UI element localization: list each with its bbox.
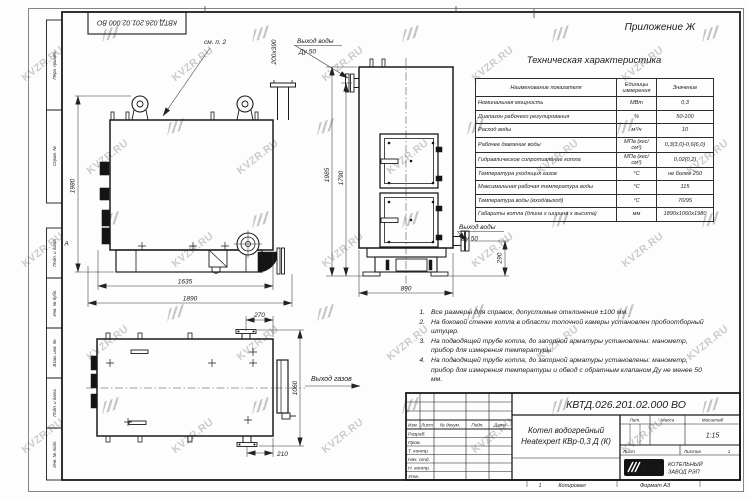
spec-cell: 1890х1060х1980 bbox=[657, 208, 714, 222]
dim-v2-flange-height: 290 bbox=[497, 252, 504, 264]
dim-v3-bottom-offset: 210 bbox=[276, 451, 288, 458]
tb-row-tkontr: Т. контр. bbox=[408, 449, 429, 455]
margin-label: Перв. примен. bbox=[52, 50, 57, 79]
scale-value: 1:15 bbox=[706, 433, 720, 440]
note-text: На боковой стенке котла в области топочн… bbox=[431, 318, 709, 337]
spec-cell: 0,02(0,2) bbox=[657, 152, 714, 167]
tb-row-razrab: Разраб. bbox=[408, 432, 426, 438]
water-outlet2-label: Выход воды bbox=[459, 223, 496, 231]
spec-cell: °С bbox=[617, 181, 657, 195]
spec-row: Температура уходящих газов°Сне более 250 bbox=[476, 167, 714, 181]
spec-cell: мм bbox=[617, 208, 657, 222]
product-title-line2: Heatexpert КВр-0,3 Д (К) bbox=[521, 437, 611, 446]
tb-header-docnum: № докум. bbox=[440, 423, 460, 428]
company-name-line1: КОТЕЛЬНЫЙ bbox=[668, 460, 703, 468]
spec-row: Максимальная рабочая температура воды°С1… bbox=[476, 181, 714, 195]
margin-label: Подп. и дата bbox=[52, 389, 57, 417]
note-item: 3.На подводящей трубе котла, до запорной… bbox=[409, 337, 709, 356]
see-note-label: см. п. 2 bbox=[204, 39, 227, 46]
note-number: 1. bbox=[409, 308, 431, 318]
note-text: На подводящей трубе котла, до запорной а… bbox=[431, 337, 709, 356]
appendix-label: Приложение Ж bbox=[495, 22, 695, 33]
tb-lit-label: Лит. bbox=[629, 418, 641, 423]
dim-v2-width: 890 bbox=[401, 286, 412, 293]
note-item: 2.На боковой стенке котла в области топо… bbox=[409, 318, 709, 337]
footer-num: 1 bbox=[538, 483, 541, 489]
dim-v2-inner-height: 1790 bbox=[338, 170, 345, 185]
spec-cell: °С bbox=[617, 167, 657, 181]
boiler-side-view bbox=[100, 80, 296, 274]
dim-v1-height: 1980 bbox=[70, 178, 77, 193]
copied-label: Копировал bbox=[558, 483, 585, 489]
boiler-front-view bbox=[346, 58, 470, 292]
dim-v1-total: 1890 bbox=[183, 296, 198, 303]
spec-cell: Температура уходящих газов bbox=[476, 167, 617, 181]
spec-cell: Габариты котла (длина х ширина х высота) bbox=[476, 208, 617, 222]
margin-label: Взам. инв. № bbox=[52, 339, 57, 366]
note-text: На подводящей трубе котла, до запорной а… bbox=[431, 356, 709, 385]
notes-section: 1.Все размеры для справок, допустимые от… bbox=[409, 308, 709, 385]
spec-header-row: Наименование показателя Единицы измерени… bbox=[476, 79, 714, 97]
spec-col-value: Значение bbox=[657, 79, 714, 97]
spec-row: Температура воды (вход/выход)°С70/95 bbox=[476, 194, 714, 208]
spec-table-title: Техническая характеристика bbox=[475, 55, 713, 66]
dim-v3-top-offset: 270 bbox=[253, 312, 265, 319]
tb-row-nachotd: Нач. отд. bbox=[408, 457, 430, 463]
water-outlet2-dn: Ду 50 bbox=[460, 236, 478, 243]
tb-header-data: Дата bbox=[493, 423, 507, 428]
spec-cell: не более 250 bbox=[657, 167, 714, 181]
spec-cell: % bbox=[617, 110, 657, 124]
spec-cell: 115 bbox=[657, 181, 714, 195]
sheets-value: 1 bbox=[728, 449, 731, 454]
doc-number-top: КВТД.026.201.02.000 ВО bbox=[97, 19, 177, 26]
spec-cell: Максимальная рабочая температура воды bbox=[476, 181, 617, 195]
outlet-size-label: 200х390 bbox=[271, 39, 278, 65]
tb-row-prov: Пров. bbox=[408, 440, 421, 446]
tb-sheet-label: Лист bbox=[622, 449, 635, 454]
doc-number: КВТД.026.201.02.000 ВО bbox=[566, 399, 686, 411]
note-item: 4.На подводящей трубе котла, до запорной… bbox=[409, 356, 709, 385]
frame-zone-letter: А bbox=[63, 241, 68, 248]
dim-v2-outer-height: 1985 bbox=[324, 167, 331, 182]
spec-cell: Гидравлическое сопротивление котла bbox=[476, 152, 617, 167]
tb-scale-label: Масштаб bbox=[702, 418, 724, 423]
spec-cell: МПа (кгс/см²) bbox=[617, 152, 657, 167]
spec-cell: МПа (кгс/см²) bbox=[617, 137, 657, 152]
margin-label: Справ. № bbox=[52, 146, 57, 166]
company-abbr: KVZR bbox=[641, 464, 663, 473]
tb-header-podp: Подп. bbox=[471, 423, 483, 428]
spec-cell: 10 bbox=[657, 124, 714, 138]
water-outlet-dn: Ду 50 bbox=[298, 49, 316, 56]
spec-cell: Диапазон рабочего регулирования bbox=[476, 110, 617, 124]
left-margin-labels: Перв. примен. Справ. № Подп. и дата Инв.… bbox=[52, 50, 57, 467]
note-item: 1.Все размеры для справок, допустимые от… bbox=[409, 308, 709, 318]
spec-cell: Номинальная мощность bbox=[476, 97, 617, 111]
note-text: Все размеры для справок, допустимые откл… bbox=[431, 308, 709, 318]
spec-row: Рабочее давление водыМПа (кгс/см²)0,3(3,… bbox=[476, 137, 714, 152]
format-label: Формат А3 bbox=[640, 483, 671, 489]
note-number: 3. bbox=[409, 337, 431, 356]
dim-v1-base: 1635 bbox=[178, 279, 193, 286]
margin-label: Инв. № дубл. bbox=[52, 289, 57, 316]
spec-cell: 50-100 bbox=[657, 110, 714, 124]
spec-row: Гидравлическое сопротивление котлаМПа (к… bbox=[476, 152, 714, 167]
product-title-line1: Котел водогрейный bbox=[528, 426, 605, 435]
tb-row-utv: Утв. bbox=[408, 474, 419, 480]
note-number: 4. bbox=[409, 356, 431, 385]
spec-cell: Рабочее давление воды bbox=[476, 137, 617, 152]
spec-row: Диапазон рабочего регулирования%50-100 bbox=[476, 110, 714, 124]
spec-cell: Расход воды bbox=[476, 124, 617, 138]
spec-cell: 0,3(3,0)-0,6(6,0) bbox=[657, 137, 714, 152]
spec-row: Расход водым³/ч10 bbox=[476, 124, 714, 138]
margin-label: Подп. и дата bbox=[52, 239, 57, 267]
dim-v3-depth: 1060 bbox=[292, 380, 299, 395]
spec-col-units: Единицы измерения bbox=[617, 79, 657, 97]
spec-col-name: Наименование показателя bbox=[476, 79, 617, 97]
spec-table-section: Техническая характеристика Наименование … bbox=[475, 55, 713, 222]
tb-header-list: Лист bbox=[420, 423, 433, 428]
spec-cell: 0,3 bbox=[657, 97, 714, 111]
company-logo: KVZR КОТЕЛЬНЫЙ ЗАВОД РЭП bbox=[624, 459, 703, 476]
company-name-line2: ЗАВОД РЭП bbox=[668, 470, 700, 476]
bottom-margin-strip: 1 Копировал Формат А3 bbox=[538, 483, 671, 489]
spec-row: Номинальная мощностьМВт0,3 bbox=[476, 97, 714, 111]
spec-cell: °С bbox=[617, 194, 657, 208]
tb-header-izm: Изм. bbox=[408, 423, 418, 428]
tb-mass-label: Масса bbox=[661, 418, 675, 423]
spec-cell: 70/95 bbox=[657, 194, 714, 208]
spec-cell: м³/ч bbox=[617, 124, 657, 138]
margin-label: Инв. № подл. bbox=[52, 440, 57, 467]
spec-row: Габариты котла (длина х ширина х высота)… bbox=[476, 208, 714, 222]
note-number: 2. bbox=[409, 318, 431, 337]
spec-cell: Температура воды (вход/выход) bbox=[476, 194, 617, 208]
tb-sheets-label: Листов bbox=[683, 449, 701, 454]
spec-table: Наименование показателя Единицы измерени… bbox=[475, 78, 714, 222]
boiler-plan-view bbox=[86, 330, 305, 447]
spec-cell: МВт bbox=[617, 97, 657, 111]
gas-outlet-label: Выход газов bbox=[311, 375, 352, 383]
tb-row-nkontr: Н. контр. bbox=[408, 466, 430, 472]
water-outlet-label: Выход воды bbox=[297, 37, 334, 45]
